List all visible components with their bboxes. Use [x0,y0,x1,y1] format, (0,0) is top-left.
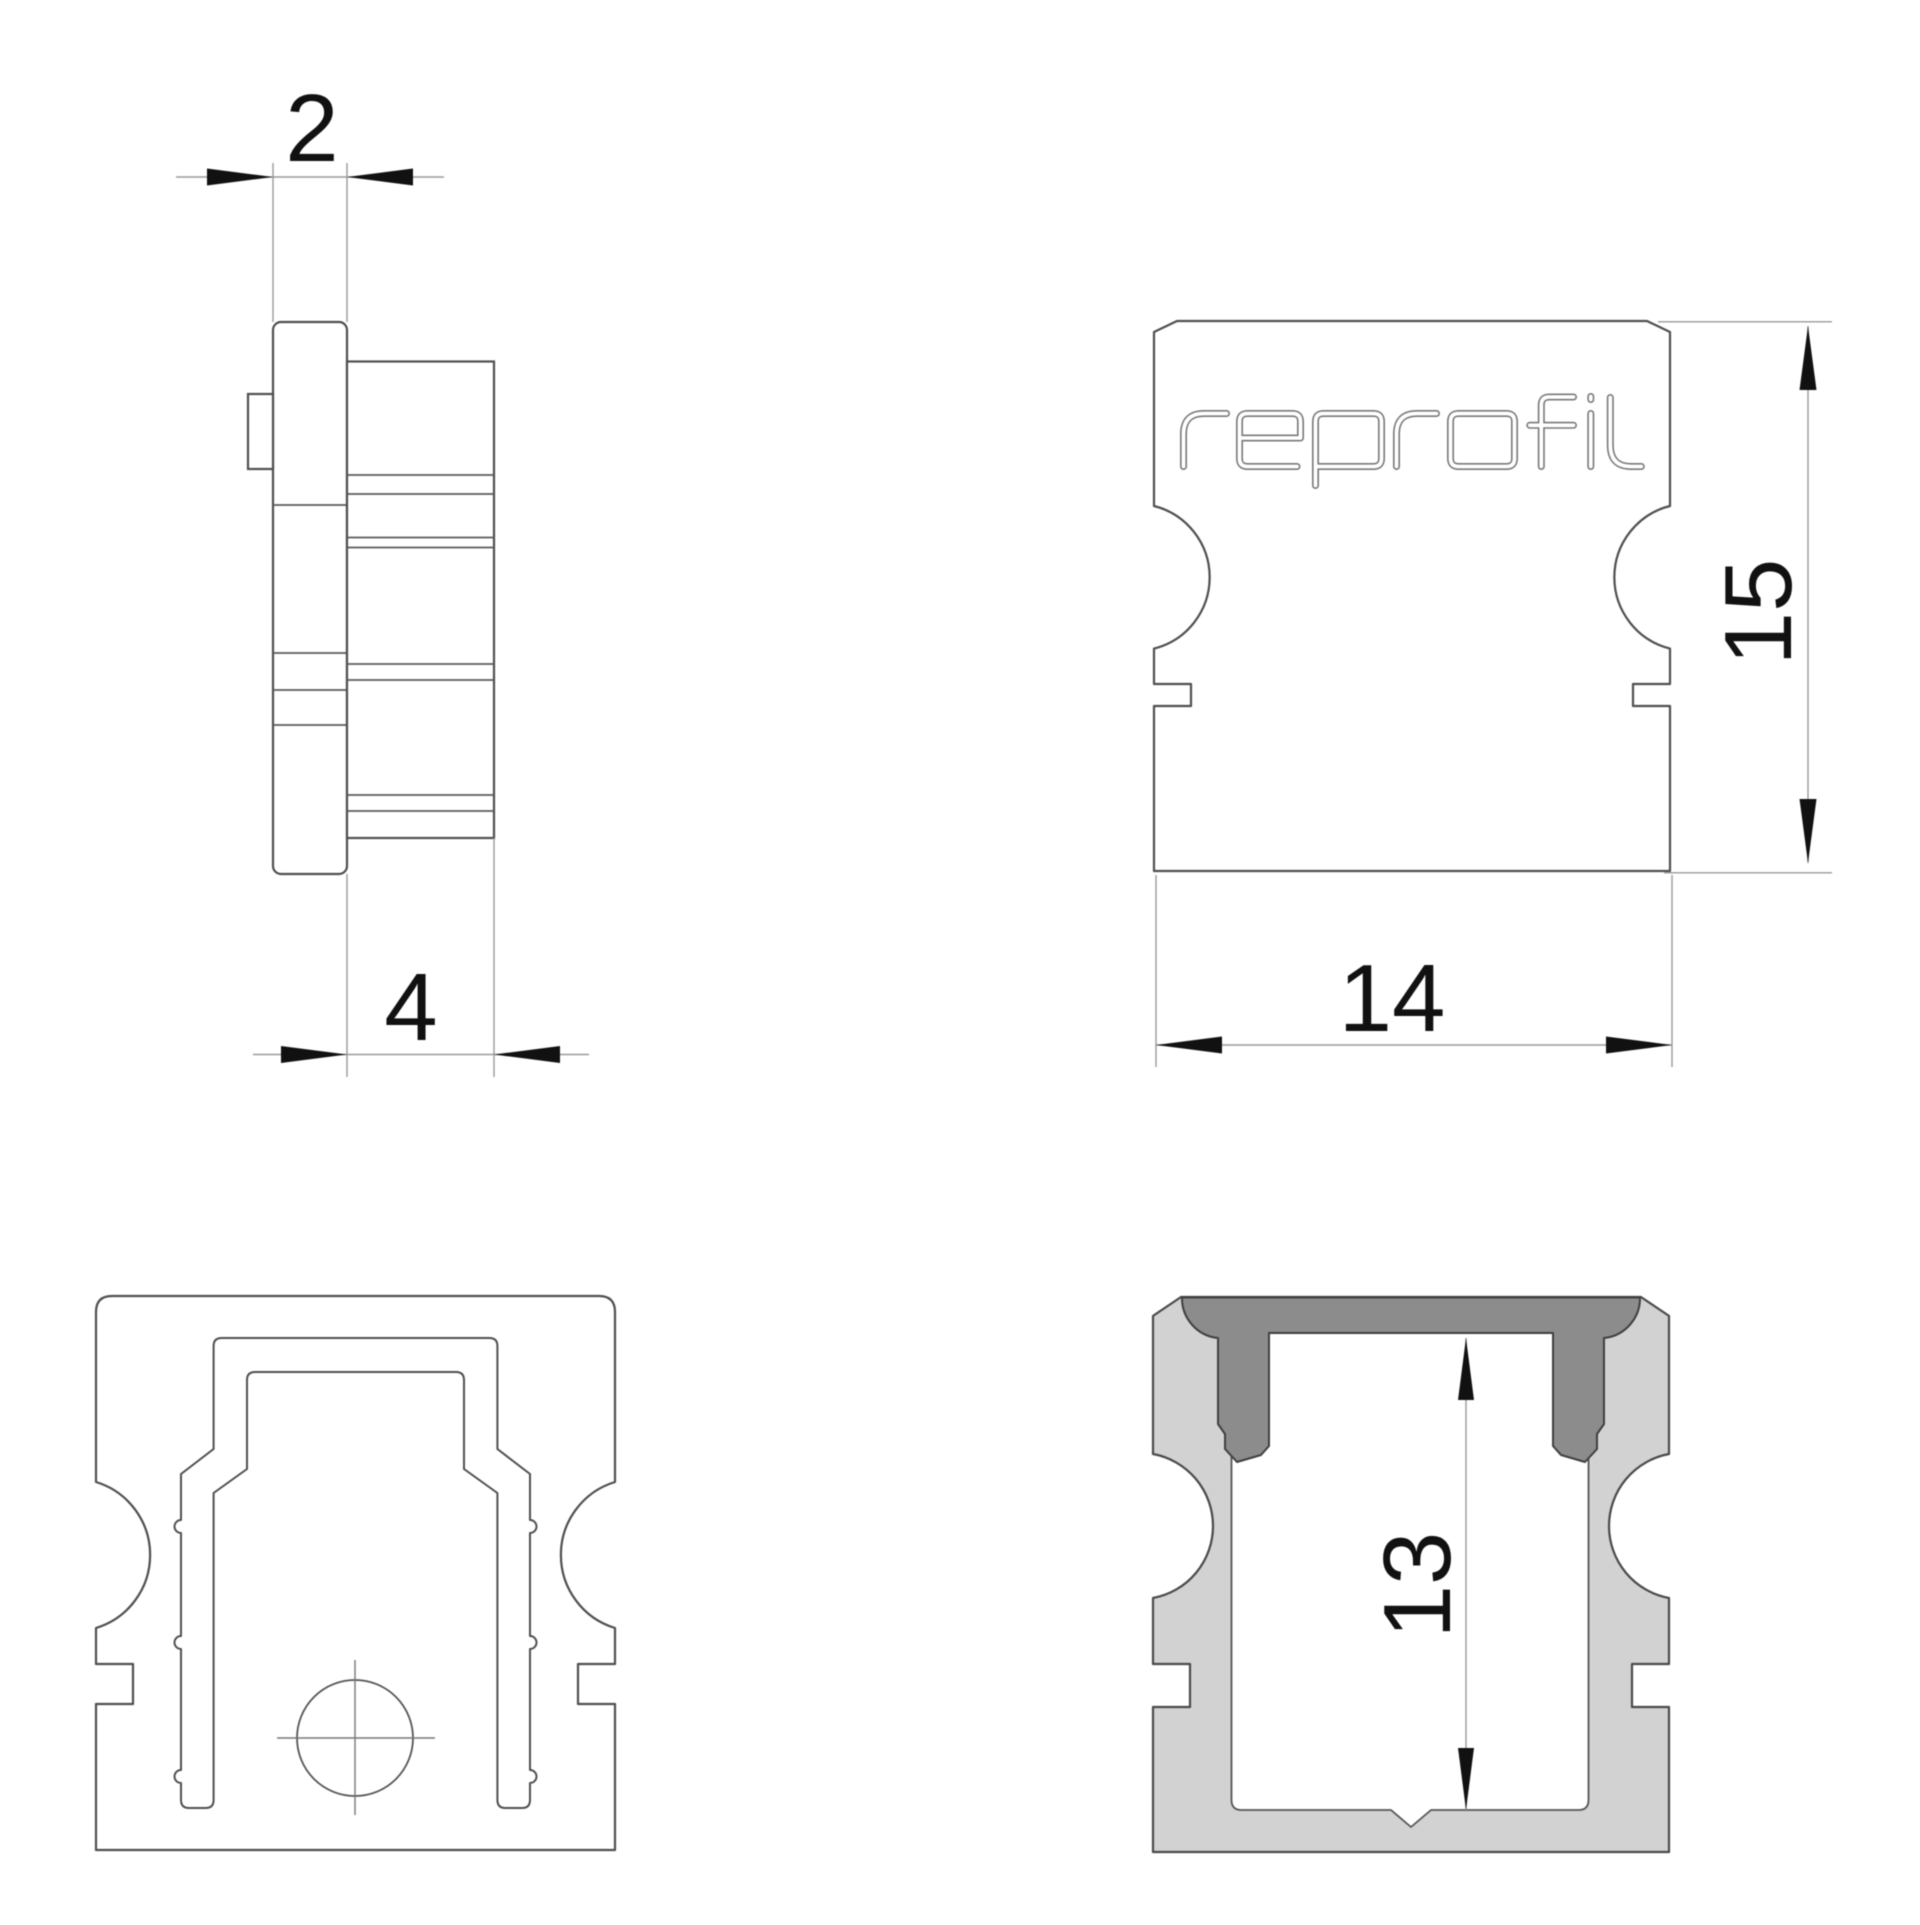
svg-text:2: 2 [285,75,338,182]
svg-text:13: 13 [1364,1532,1471,1639]
svg-text:15: 15 [1705,559,1812,666]
svg-text:4: 4 [384,954,437,1061]
svg-text:14: 14 [1339,945,1446,1052]
